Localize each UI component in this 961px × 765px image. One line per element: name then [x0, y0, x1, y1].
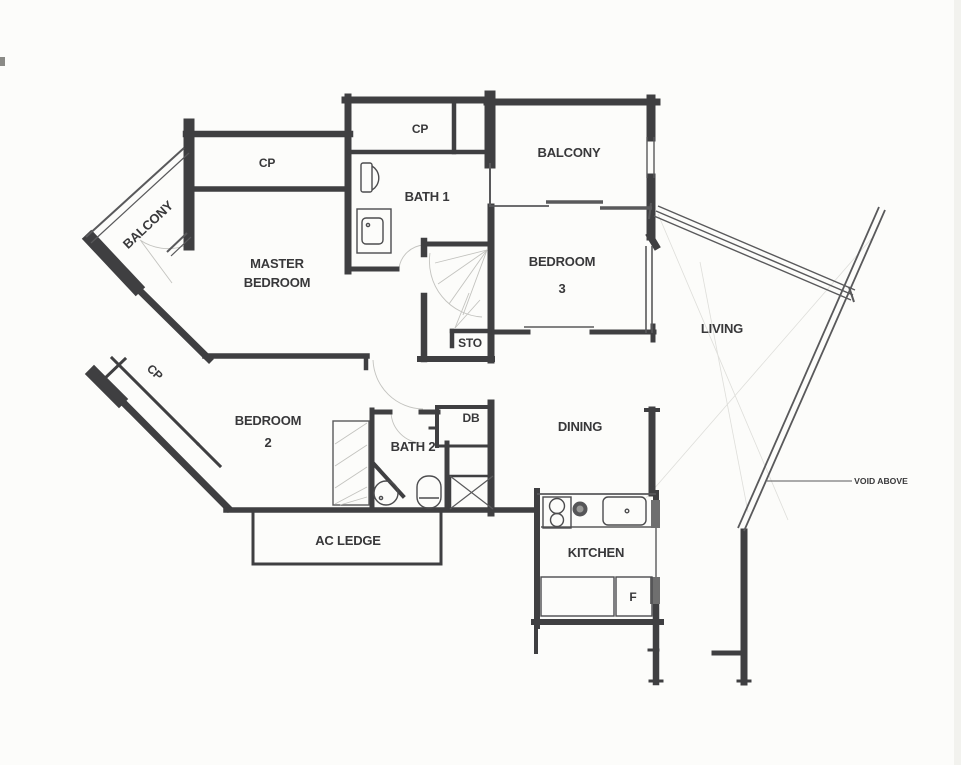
label-bedroom3-line1: BEDROOM	[529, 254, 596, 269]
bath1-toilet-bowl-icon	[372, 166, 379, 190]
kitchen-cabinet-icon	[541, 577, 614, 616]
label-balcony-right: BALCONY	[538, 145, 601, 160]
scan-artifacts	[0, 0, 961, 765]
label-sto: STO	[458, 336, 482, 350]
bath1-toilet-tank-icon	[361, 163, 372, 192]
label-fridge: F	[629, 590, 636, 604]
stove-icon	[543, 497, 571, 528]
label-bedroom2-line2: 2	[264, 435, 271, 450]
bath2-toilet-icon	[417, 476, 441, 508]
label-dining: DINING	[558, 419, 602, 434]
floor-plan-page: CP BALCONY CP BATH 1 BALCONY MASTER BEDR…	[0, 0, 961, 765]
label-cp-mid-left: CP	[144, 361, 166, 383]
scan-creases	[646, 214, 872, 520]
label-bedroom2-line1: BEDROOM	[235, 413, 302, 428]
label-cp-top: CP	[412, 122, 428, 136]
room-labels: CP BALCONY CP BATH 1 BALCONY MASTER BEDR…	[120, 122, 908, 604]
label-master-line1: MASTER	[250, 256, 305, 271]
label-master-line2: BEDROOM	[244, 275, 311, 290]
label-cp-top-left: CP	[259, 156, 275, 170]
label-ac-ledge: AC LEDGE	[315, 533, 381, 548]
floor-plan-svg: CP BALCONY CP BATH 1 BALCONY MASTER BEDR…	[0, 0, 961, 765]
kitchen-door-leaf-upper	[651, 500, 660, 528]
label-bath2: BATH 2	[391, 439, 436, 454]
kitchen-sink-icon	[603, 497, 646, 525]
label-db: DB	[463, 411, 480, 425]
wardrobe-hatch	[333, 421, 369, 505]
label-living: LIVING	[701, 321, 743, 336]
label-balcony-left: BALCONY	[120, 197, 177, 251]
bath2-sink-icon	[374, 481, 398, 505]
label-kitchen: KITCHEN	[568, 545, 624, 560]
label-bedroom3-line2: 3	[558, 281, 565, 296]
label-bath1: BATH 1	[405, 189, 450, 204]
label-void-above: VOID ABOVE	[854, 476, 908, 486]
walls-thick	[91, 96, 744, 682]
